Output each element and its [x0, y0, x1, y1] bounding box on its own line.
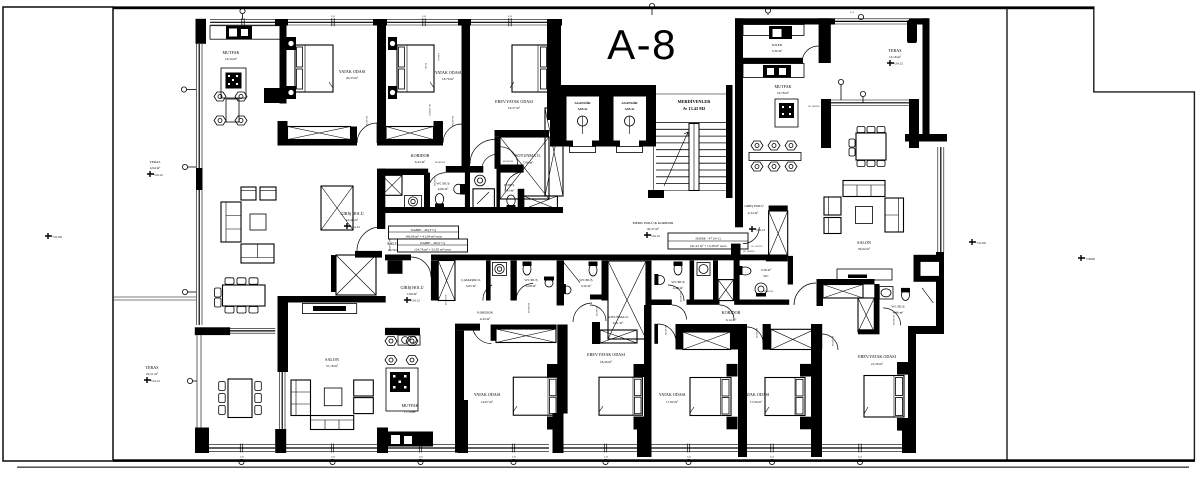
svg-text:ÇAMAŞIR O.: ÇAMAŞIR O. — [461, 278, 481, 282]
svg-text:K2 80/220: K2 80/220 — [503, 161, 514, 163]
svg-text:K3 90/220: K3 90/220 — [451, 116, 453, 127]
svg-text:MUTFAK: MUTFAK — [775, 84, 792, 89]
svg-text:+21.06: +21.06 — [976, 241, 986, 245]
svg-text:GİRİŞ HOLÜ: GİRİŞ HOLÜ — [340, 211, 363, 216]
svg-text:WC: WC — [763, 274, 769, 278]
svg-text:MERDİVENLER: MERDİVENLER — [678, 99, 712, 104]
svg-text:MUTFAK: MUTFAK — [223, 50, 240, 55]
svg-text:DAİRE - 48 (2+1): DAİRE - 48 (2+1) — [420, 240, 445, 245]
svg-text:K1 100/220: K1 100/220 — [809, 106, 821, 108]
svg-text:K2 80/220: K2 80/220 — [595, 306, 597, 317]
svg-text:+24.12: +24.12 — [350, 225, 360, 229]
svg-text:TERAS: TERAS — [146, 365, 160, 370]
svg-text:GİRİŞ HOLÜ: GİRİŞ HOLÜ — [400, 285, 423, 290]
svg-text:DAİRE - 49 (3+1): DAİRE - 49 (3+1) — [411, 227, 436, 232]
svg-text:WC/DUŞ: WC/DUŞ — [524, 278, 537, 282]
svg-text:MERD. HOLÜ & KORİDOR: MERD. HOLÜ & KORİDOR — [633, 220, 674, 225]
svg-text:A̴: 13.43 M2: A̴: 13.43 M2 — [683, 106, 706, 111]
svg-text:W.DUŞ: W.DUŞ — [504, 183, 515, 187]
svg-text:K3 140/220: K3 140/220 — [752, 246, 764, 248]
svg-text:K2 80/220: K2 80/220 — [527, 303, 529, 314]
svg-text:+24.12: +24.12 — [153, 173, 163, 177]
svg-text:+24.12: +24.12 — [410, 299, 420, 303]
svg-text:GİRİŞ HOLÜ: GİRİŞ HOLÜ — [744, 203, 764, 208]
svg-text:KORİDOR: KORİDOR — [477, 310, 493, 315]
svg-text:MUTFAK: MUTFAK — [402, 403, 419, 408]
svg-text:WC/DUŞ: WC/DUŞ — [671, 280, 684, 284]
svg-text:TERAS: TERAS — [889, 48, 903, 53]
svg-text:K2 80/220: K2 80/220 — [679, 292, 681, 303]
svg-text:YATAK ODASI: YATAK ODASI — [435, 70, 462, 75]
svg-text:WC/DUŞ: WC/DUŞ — [579, 278, 592, 282]
svg-text:K1 100/220: K1 100/220 — [428, 105, 430, 117]
svg-text:K2 80/220: K2 80/220 — [435, 162, 446, 164]
svg-text:P3 205: P3 205 — [424, 63, 426, 70]
svg-text:SOYUNMA O.: SOYUNMA O. — [607, 315, 628, 319]
svg-text:K3 90/220: K3 90/220 — [831, 336, 833, 347]
svg-text:EBEV.YATAK ODASI: EBEV.YATAK ODASI — [495, 99, 533, 104]
svg-text:+24.12: +24.12 — [150, 379, 160, 383]
svg-text:3,65 m: 3,65 m — [625, 107, 635, 111]
svg-text:YATAK ODASI: YATAK ODASI — [743, 392, 770, 397]
svg-text:EBEV.YATAK ODASI: EBEV.YATAK ODASI — [858, 354, 896, 359]
svg-text:ASANSÖR: ASANSÖR — [621, 100, 638, 105]
svg-text:K3 90/220: K3 90/220 — [365, 116, 367, 127]
svg-text:K1 100/220: K1 100/220 — [388, 240, 390, 252]
svg-text:A2 60/220: A2 60/220 — [763, 290, 774, 293]
svg-text:K2 80/220: K2 80/220 — [433, 176, 435, 187]
svg-text:KORIDOR: KORIDOR — [411, 153, 430, 158]
svg-text:K3 90/220: K3 90/220 — [755, 328, 757, 339]
svg-text:KİLER: KİLER — [772, 42, 783, 47]
svg-text:EBEV.YATAK ODASI: EBEV.YATAK ODASI — [587, 352, 625, 357]
svg-text:YATAK ODASI: YATAK ODASI — [339, 69, 366, 74]
svg-text:YATAK ODASI: YATAK ODASI — [659, 392, 686, 397]
svg-text:SALON: SALON — [857, 240, 871, 245]
svg-text:+21.06: +21.06 — [52, 235, 62, 239]
svg-text:+24.12: +24.12 — [650, 234, 660, 238]
svg-text:K2 80/220: K2 80/220 — [892, 315, 894, 326]
svg-text:K2 80/220: K2 80/220 — [444, 295, 446, 306]
svg-text:A-8: A-8 — [607, 21, 677, 68]
svg-text:DAİRE - 47 (3+1): DAİRE - 47 (3+1) — [696, 236, 721, 241]
svg-text:TERAS: TERAS — [150, 160, 161, 164]
svg-text:WC/DUŞ: WC/DUŞ — [891, 305, 904, 309]
svg-text:+24.12: +24.12 — [893, 62, 903, 66]
svg-text:SALON: SALON — [325, 357, 339, 362]
svg-text:+18.90: +18.90 — [1085, 257, 1095, 261]
svg-text:WC/DUŞ: WC/DUŞ — [436, 182, 449, 186]
svg-text:3,65 m: 3,65 m — [578, 107, 588, 111]
svg-text:K2 80/220: K2 80/220 — [497, 171, 508, 173]
svg-text:+24.12: +24.12 — [755, 228, 765, 232]
svg-text:K1 100/220: K1 100/220 — [744, 251, 756, 253]
svg-text:6,04x0,5: 6,04x0,5 — [437, 53, 439, 62]
svg-text:ASANSÖR: ASANSÖR — [574, 100, 591, 105]
svg-text:K3 90/220: K3 90/220 — [664, 325, 666, 336]
svg-text:SOYUNMA O.: SOYUNMA O. — [515, 153, 540, 158]
svg-text:YATAK ODASI: YATAK ODASI — [474, 392, 501, 397]
